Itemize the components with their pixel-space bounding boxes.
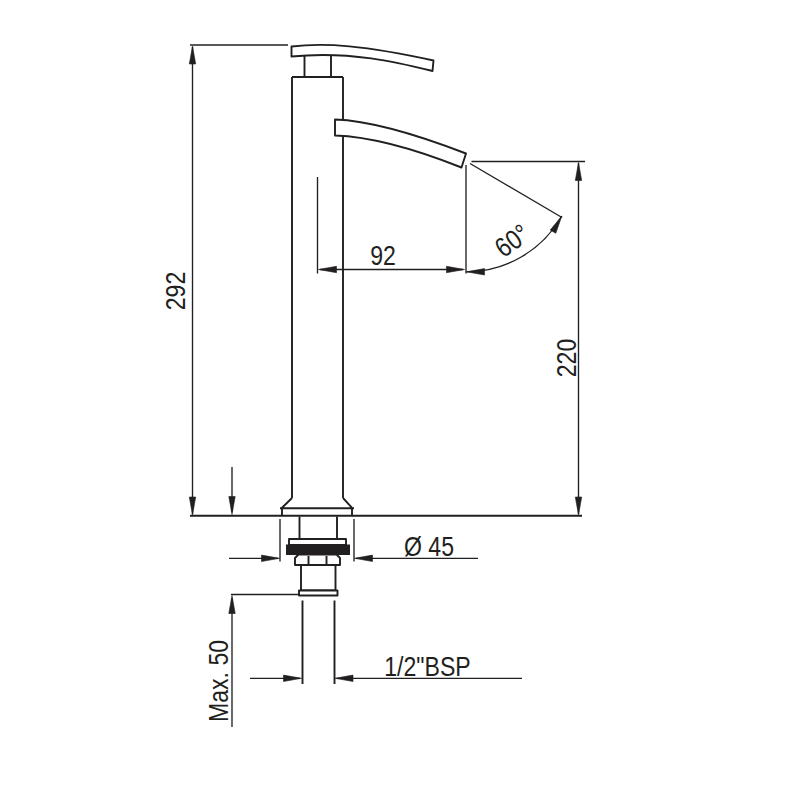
dim-base-diameter-label: Ø 45 <box>404 531 454 561</box>
dim-inlet-thread-label: 1/2"BSP <box>384 651 470 681</box>
dim-spout-reach-label: 92 <box>370 240 396 270</box>
shank-end-cap <box>299 591 338 596</box>
threaded-shank <box>301 565 336 591</box>
gasket <box>287 545 350 555</box>
mounting-nut <box>295 555 340 566</box>
dim-outlet-height-label: 220 <box>551 339 581 378</box>
washer-plate <box>289 539 346 545</box>
drawing-canvas: 292 92 60° 220 <box>0 0 800 800</box>
dim-max-deck-thickness-label: Max. 50 <box>203 640 233 722</box>
dim-overall-height-label: 292 <box>160 272 190 311</box>
technical-drawing: 292 92 60° 220 <box>0 0 800 800</box>
